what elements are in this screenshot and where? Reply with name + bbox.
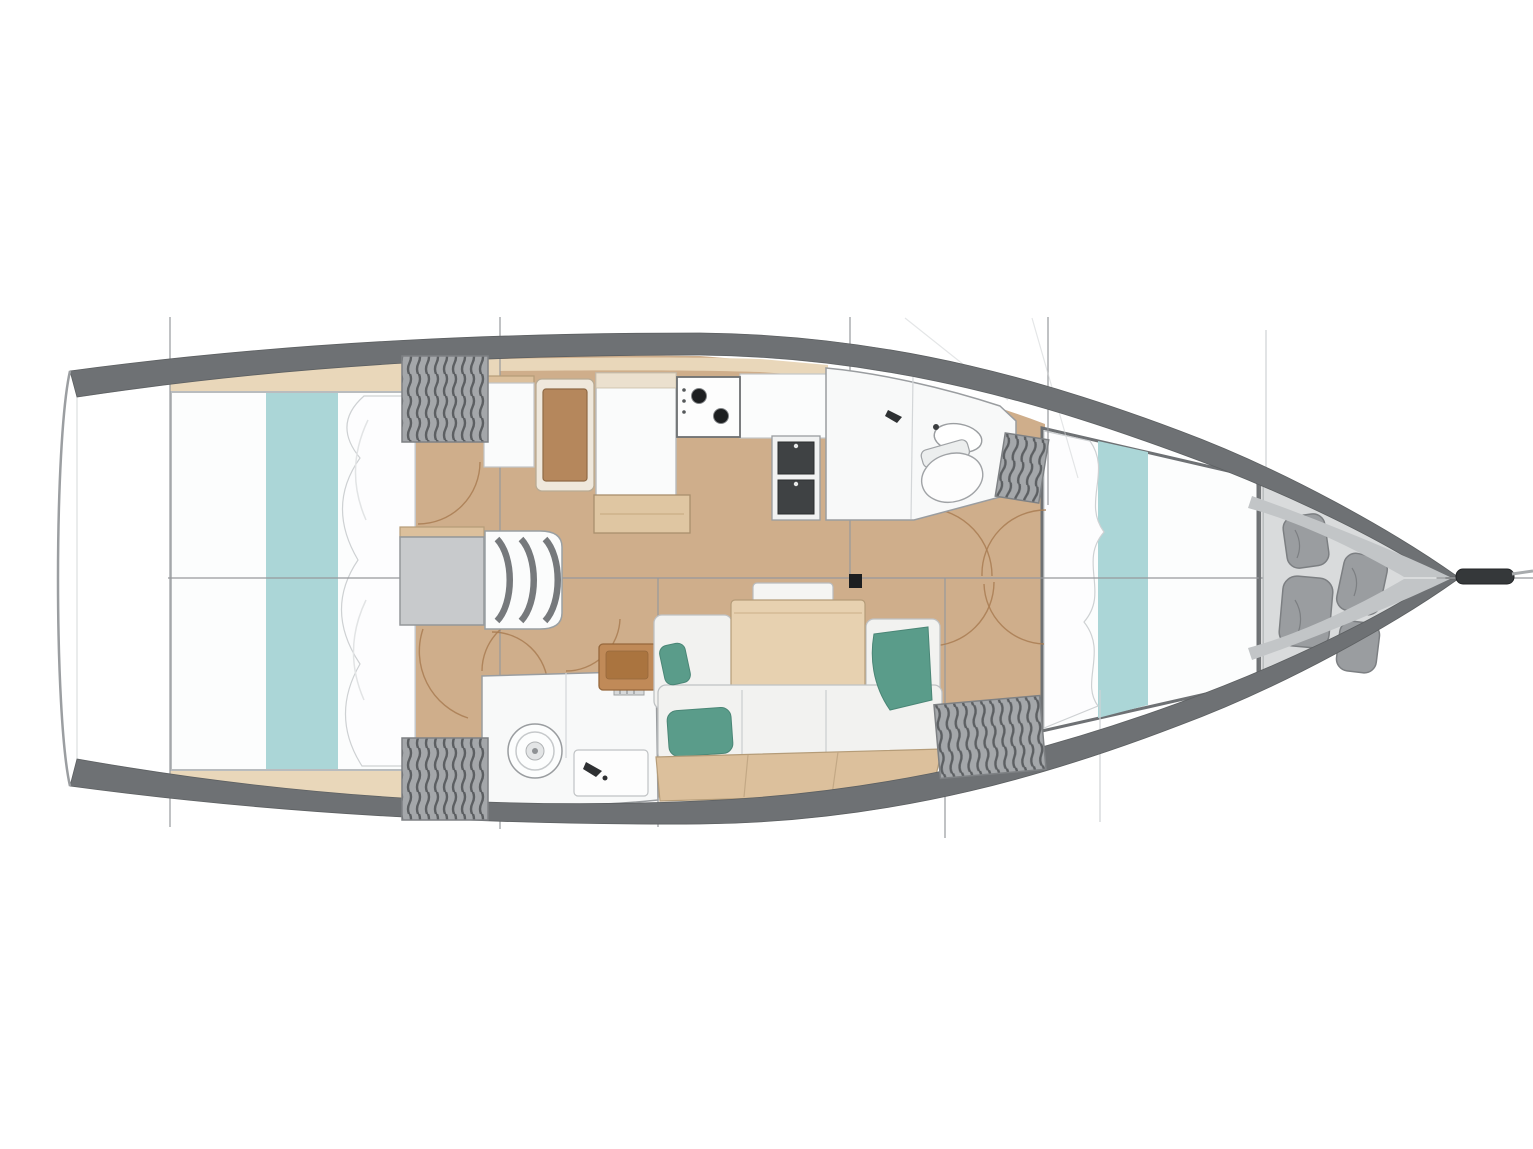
- aft-locker-starboard: [402, 738, 488, 820]
- aft-head: [482, 671, 658, 806]
- chart-table-trim: [596, 373, 676, 388]
- shower-pan: [574, 750, 648, 796]
- floor-plan-canvas: Sailing yacht interior layout plan (top …: [0, 0, 1533, 1149]
- stove: [677, 377, 740, 437]
- sink-faucet-2: [794, 482, 798, 486]
- galley-counter: [740, 374, 830, 438]
- transom-line: [58, 371, 70, 786]
- teal-seat-pad: [666, 707, 733, 757]
- sink-faucet-1: [794, 444, 798, 448]
- nav-seat: [543, 389, 587, 481]
- mast-post: [849, 574, 862, 588]
- nav-cabinet: [484, 383, 534, 467]
- salon-side-cabinet-top: [606, 651, 648, 679]
- forward-locker-bottom: [934, 696, 1046, 779]
- sailboat-floor-plan: [0, 0, 1533, 1149]
- engine-box: [400, 537, 484, 625]
- stove-burner-1: [692, 389, 707, 404]
- stove-knob-2: [682, 399, 686, 403]
- companionway-wood-trim: [400, 527, 484, 537]
- anchor-sprit: [1456, 569, 1514, 584]
- bow-fitting: [1456, 569, 1533, 584]
- aft-cabin-bed: [171, 392, 415, 770]
- stove-knob-1: [682, 388, 686, 392]
- forward-locker-top: [995, 433, 1048, 503]
- chart-table: [596, 373, 676, 499]
- aft-bed-teal-runner: [266, 393, 338, 769]
- stove-knob-3: [682, 410, 686, 414]
- v-berth-teal-runner: [1098, 441, 1148, 718]
- shower-drain-dot: [603, 776, 608, 781]
- aft-locker-port: [402, 356, 488, 442]
- aft-toilet-drain: [532, 748, 538, 754]
- basin-faucet-dot: [933, 424, 939, 430]
- companionway: [400, 527, 562, 629]
- stove-burner-2: [714, 409, 729, 424]
- bow-roller-line: [1512, 571, 1533, 574]
